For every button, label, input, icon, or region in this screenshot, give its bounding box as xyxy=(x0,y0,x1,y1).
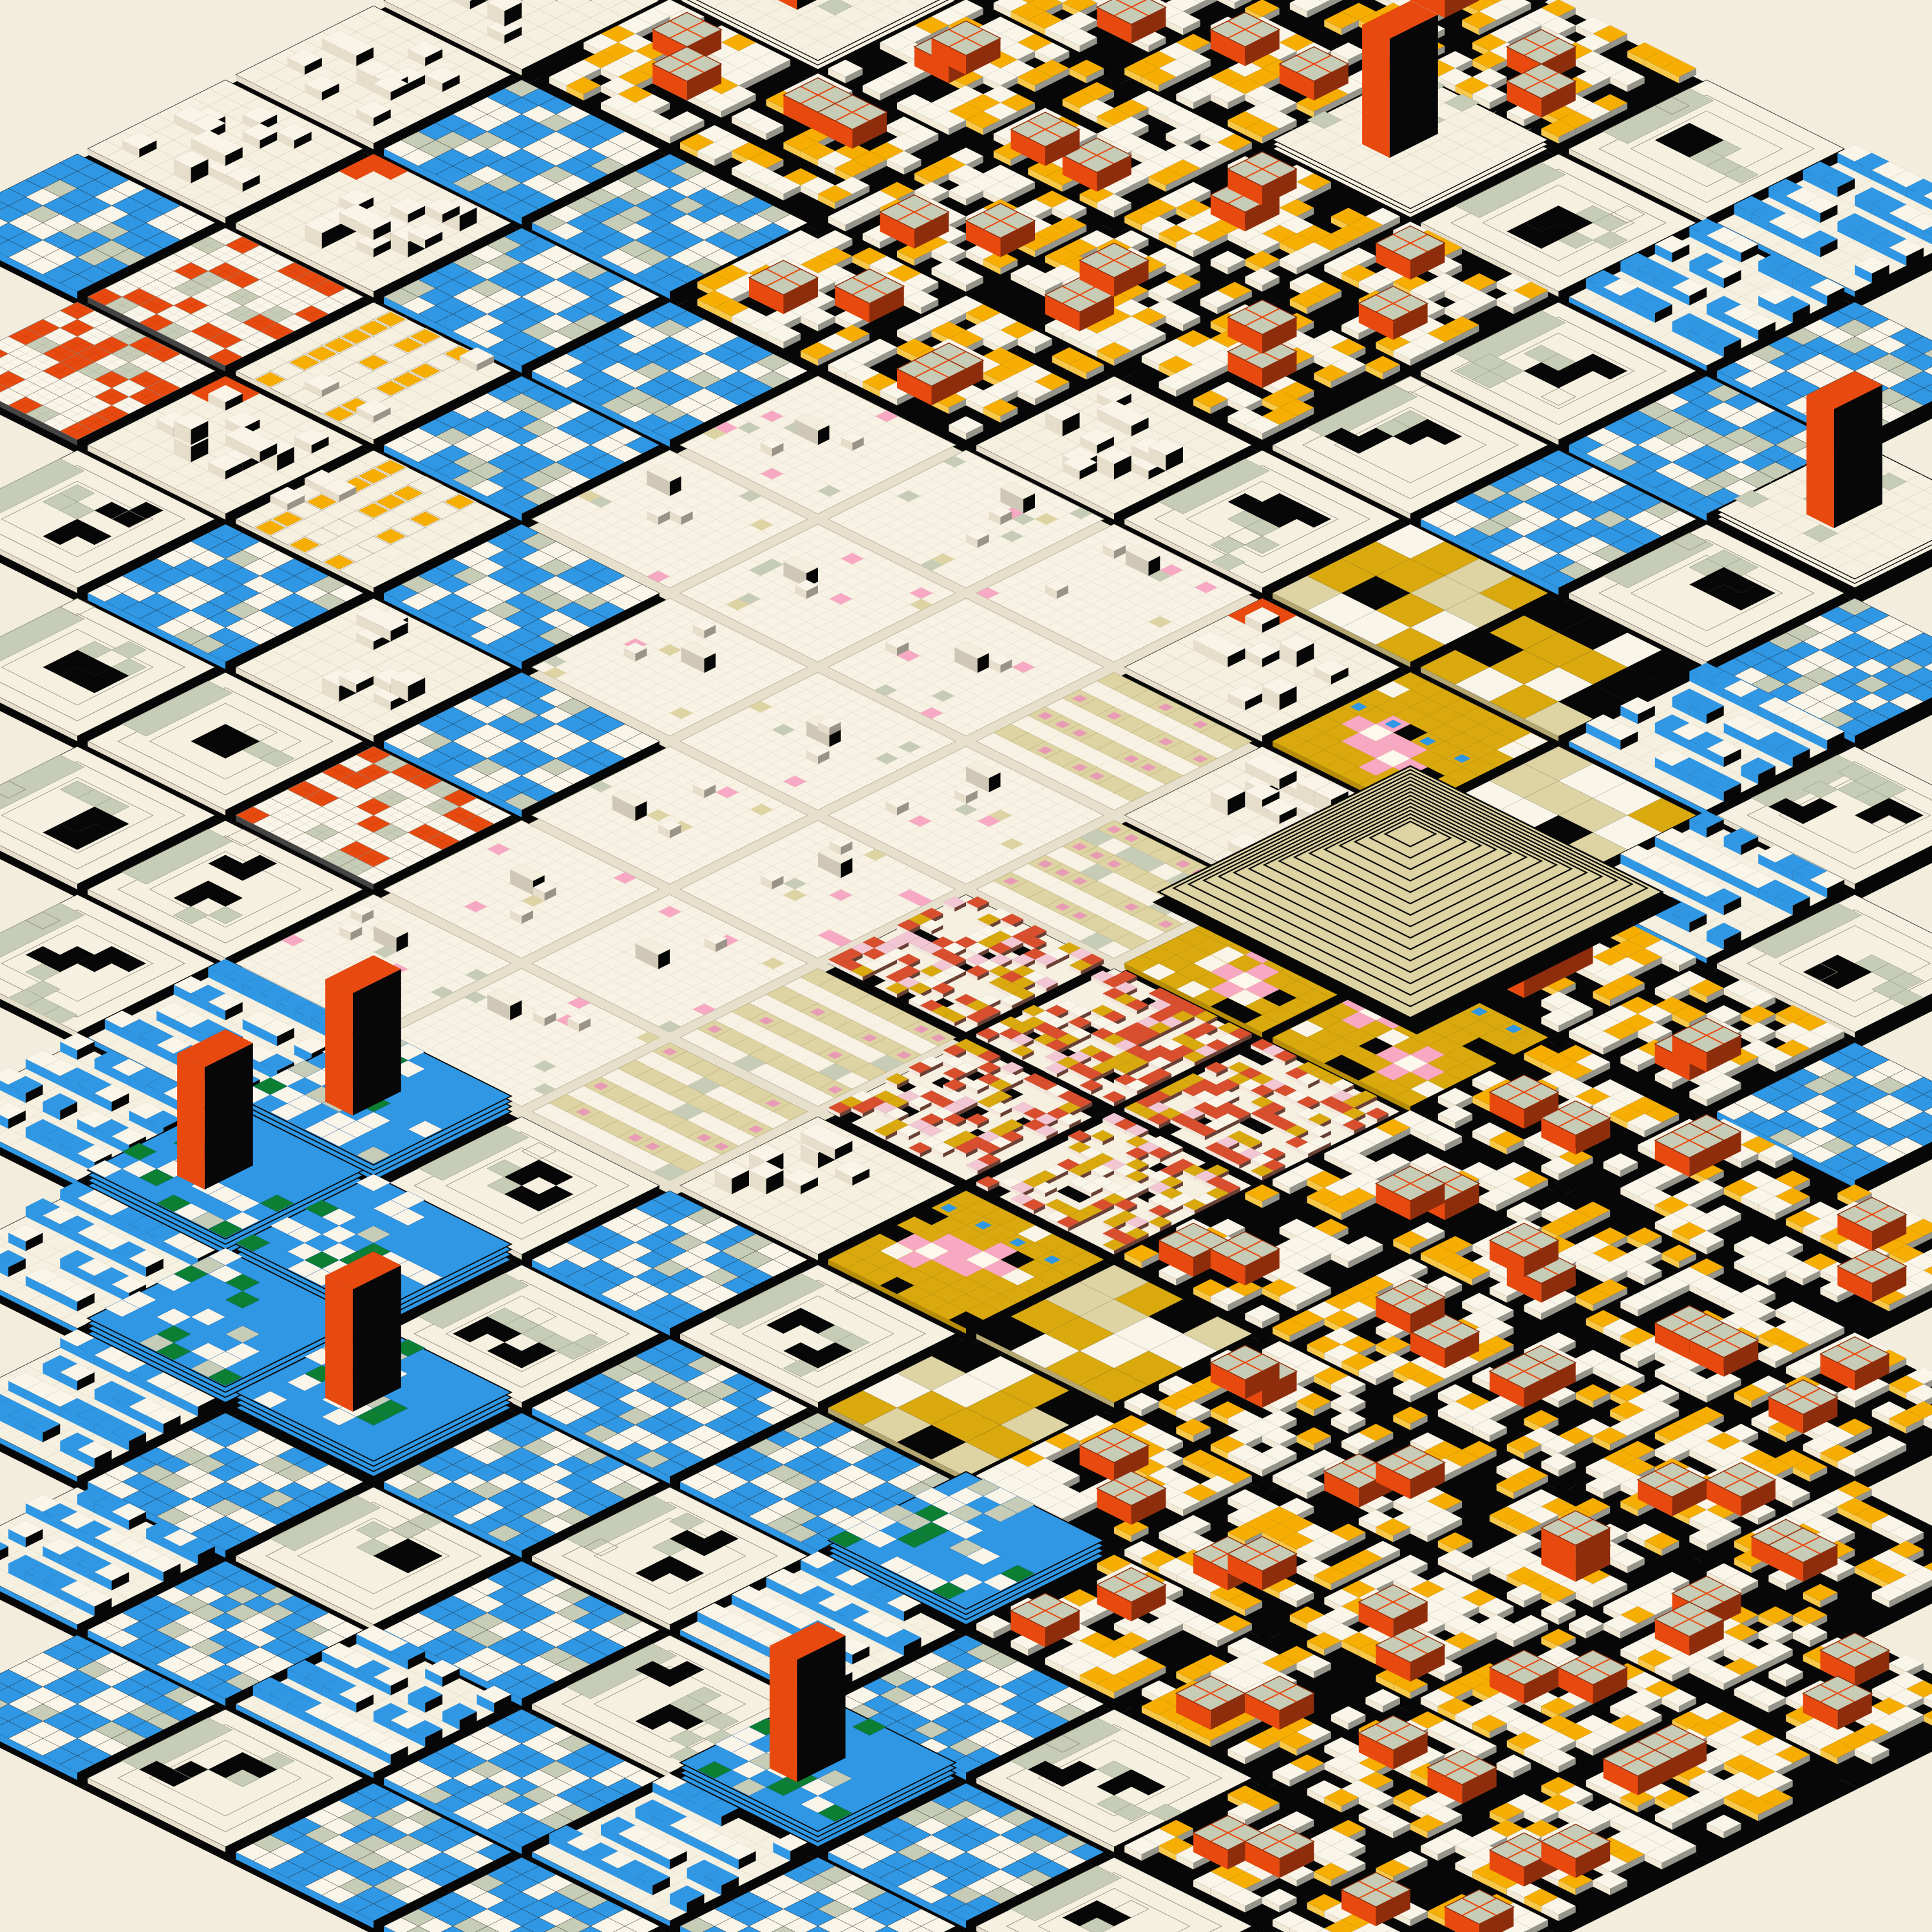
generative-artwork-stage xyxy=(0,0,1932,1932)
generative-artwork xyxy=(0,0,1932,1932)
